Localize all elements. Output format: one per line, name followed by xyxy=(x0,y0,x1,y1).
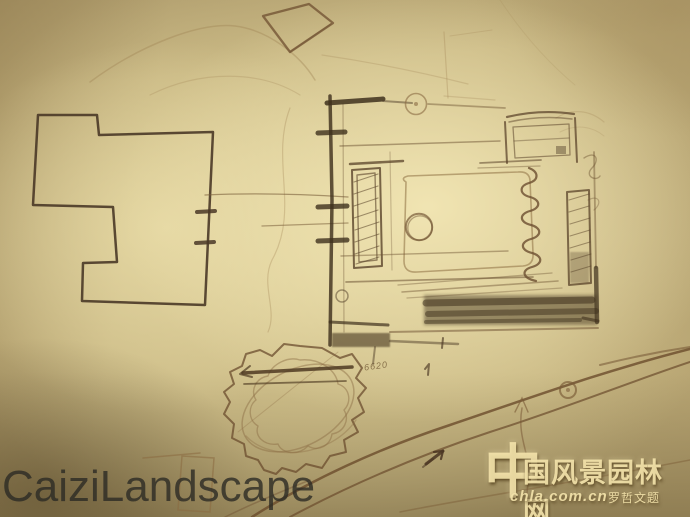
plan-courtyard xyxy=(403,172,533,272)
plan-tick-1 xyxy=(318,132,345,133)
tree-ellipse xyxy=(227,346,369,469)
plan-pavilion xyxy=(505,112,577,163)
chla-site-name: 国风景园林网 xyxy=(523,451,690,517)
direction-arrow xyxy=(423,338,443,467)
chla-seal: 罗哲文题 xyxy=(608,489,660,506)
building-tick-1 xyxy=(197,211,215,212)
plan-hatch-right xyxy=(567,190,591,285)
watermark-chla: 中 国风景园林网 chla.com.cn 罗哲文题 xyxy=(484,443,690,517)
building-outline xyxy=(33,115,215,305)
chla-url: chla.com.cn xyxy=(510,488,608,505)
sketch-drawing xyxy=(0,0,690,517)
watermark-caizilandscape: CaiziLandscape xyxy=(2,465,315,509)
plan-hatch-left xyxy=(350,161,403,268)
plan-bottom-band xyxy=(424,295,597,325)
connector-lines xyxy=(205,194,348,226)
plan-tick-2 xyxy=(318,206,347,207)
plan-sketch xyxy=(318,94,600,365)
tilted-square xyxy=(263,4,333,52)
plan-tick-3 xyxy=(318,240,347,241)
small-up-tick xyxy=(425,364,429,375)
tree-cluster xyxy=(224,344,369,474)
sketch-photo: 6620 CaiziLandscape 中 国风景园林网 chla.com.cn… xyxy=(0,0,690,517)
building-tick-2 xyxy=(196,242,214,243)
plan-top-edge xyxy=(327,99,383,103)
small-dash xyxy=(442,338,443,348)
